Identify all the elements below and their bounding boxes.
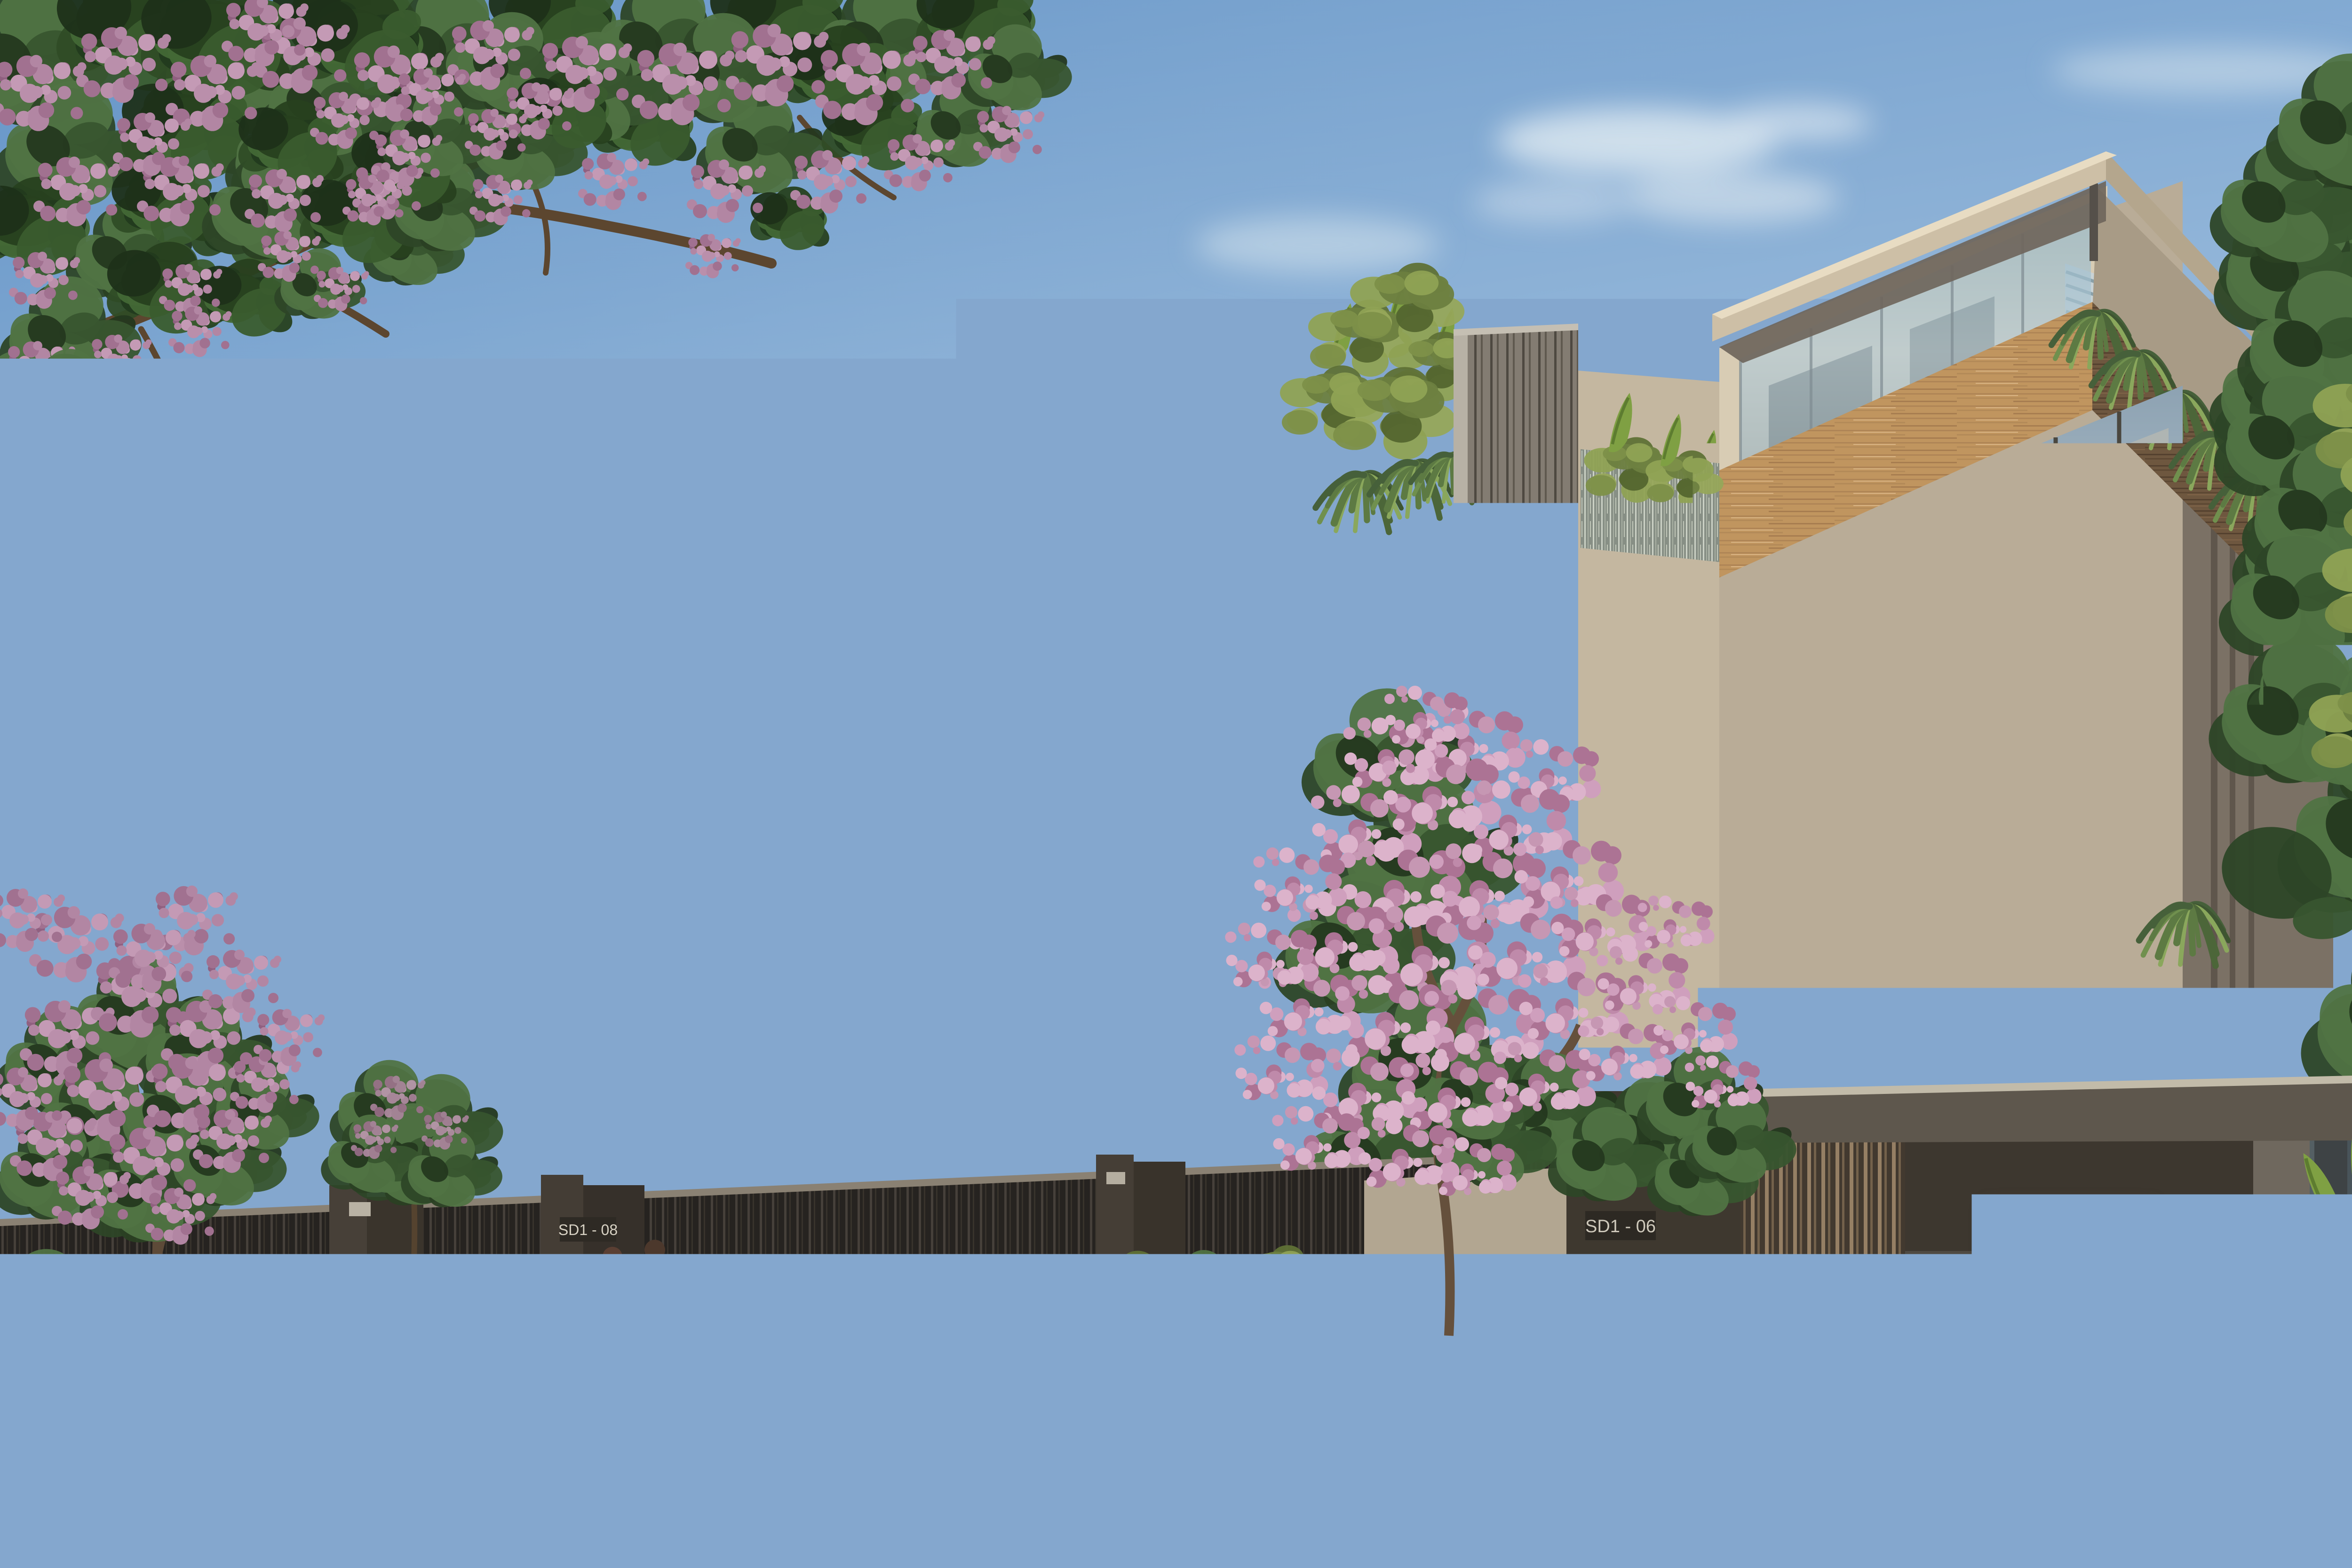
svg-text:M NU 9249: M NU 9249 [2255,1358,2352,1381]
svg-text:SD1 - 06: SD1 - 06 [1585,1217,1656,1236]
svg-text:M NU 9249: M NU 9249 [1949,1353,2049,1375]
svg-text:SD1 - 08: SD1 - 08 [558,1221,618,1238]
